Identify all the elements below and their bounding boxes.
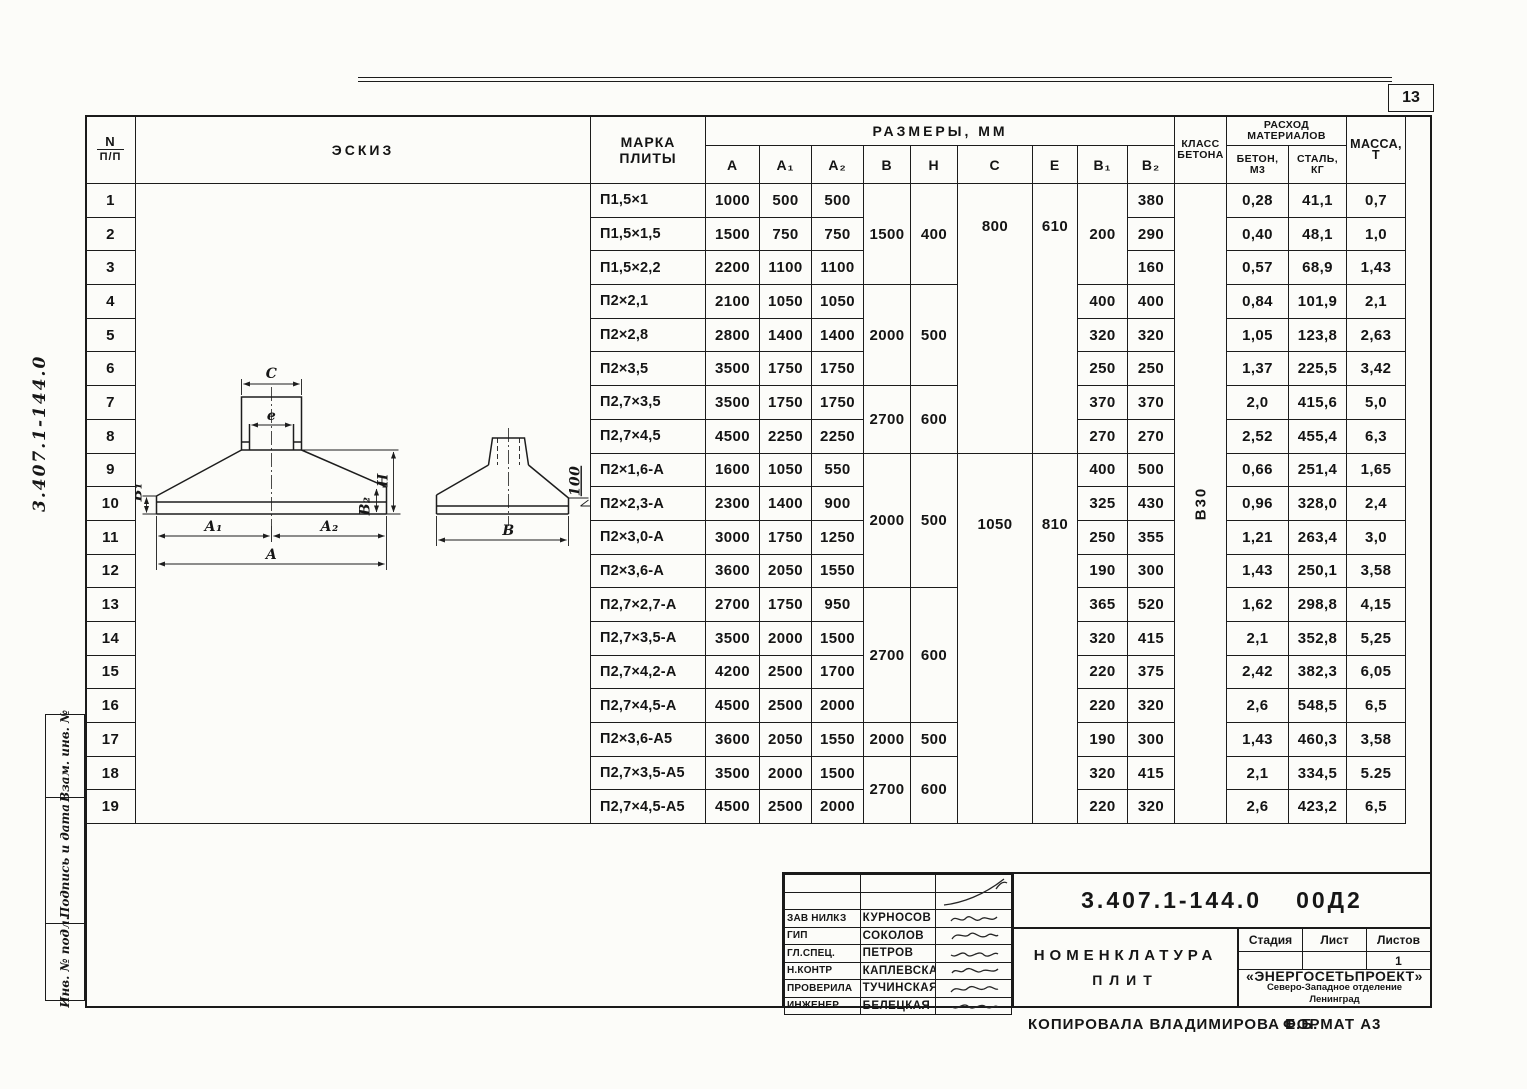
row-num: 19 bbox=[86, 790, 136, 824]
dim-a2: 1100 bbox=[812, 251, 864, 285]
plate-mark: П2,7×4,2-А bbox=[591, 655, 706, 689]
steel-weight: 328,0 bbox=[1289, 487, 1347, 521]
dim-a1: 2500 bbox=[760, 689, 812, 723]
dim-a1: 1750 bbox=[760, 520, 812, 554]
dim-h: 500 bbox=[911, 723, 958, 757]
dim-a: 2200 bbox=[706, 251, 760, 285]
dim-a: 1600 bbox=[706, 453, 760, 487]
plate-mark: П2,7×4,5-А bbox=[591, 689, 706, 723]
mass: 3,58 bbox=[1347, 554, 1406, 588]
plate-mark: П2×3,0-А bbox=[591, 520, 706, 554]
dim-b2: 520 bbox=[1128, 588, 1175, 622]
concrete-volume: 2,6 bbox=[1227, 689, 1289, 723]
dim-a2: 1250 bbox=[812, 520, 864, 554]
document-number: 3.407.1-144.0 bbox=[1081, 887, 1262, 914]
col-b1: В₁ bbox=[1078, 146, 1128, 184]
dim-b2: 355 bbox=[1128, 520, 1175, 554]
dim-b1: 325 bbox=[1078, 487, 1128, 521]
row-num: 16 bbox=[86, 689, 136, 723]
dim-a2: 1550 bbox=[812, 554, 864, 588]
dim-a: 4500 bbox=[706, 689, 760, 723]
stamp-box-inv: Инв. № подл. bbox=[45, 923, 85, 1001]
row-num: 10 bbox=[86, 487, 136, 521]
dim-a: 1000 bbox=[706, 184, 760, 218]
dim-b1: 320 bbox=[1078, 318, 1128, 352]
person-name: Петров bbox=[860, 945, 936, 963]
dim-b1: 365 bbox=[1078, 588, 1128, 622]
dim-a2: 500 bbox=[812, 184, 864, 218]
role-label: Проверила bbox=[785, 980, 861, 998]
col-beton: Бетон, м3 bbox=[1227, 146, 1289, 184]
dim-b2: 320 bbox=[1128, 689, 1175, 723]
steel-weight: 251,4 bbox=[1289, 453, 1347, 487]
dim-a1: 1400 bbox=[760, 318, 812, 352]
stamp-label: Подпись и дата bbox=[58, 804, 72, 918]
dim-b2: 250 bbox=[1128, 352, 1175, 386]
steel-weight: 250,1 bbox=[1289, 554, 1347, 588]
dim-a1: 1100 bbox=[760, 251, 812, 285]
col-klass: Класс бетона bbox=[1175, 116, 1227, 184]
row-num: 15 bbox=[86, 655, 136, 689]
org-branch: Северо-Западное отделение bbox=[1267, 982, 1402, 994]
copy-note: Копировала Владимирова Е.Б. bbox=[1028, 1016, 1318, 1033]
title-block: Зав НИЛКЗ Курносов ГИП Соколов Гл.спец. … bbox=[782, 872, 1432, 1008]
concrete-class: В30 bbox=[1192, 487, 1209, 521]
col-marka: Марка плиты bbox=[591, 116, 706, 184]
dim-a: 3500 bbox=[706, 386, 760, 420]
plate-mark: П1,5×1 bbox=[591, 184, 706, 218]
stamp-label: Инв. № подл. bbox=[58, 916, 72, 1008]
dim-a2: 1700 bbox=[812, 655, 864, 689]
dim-b2: 415 bbox=[1128, 756, 1175, 790]
col-e: е bbox=[1033, 146, 1078, 184]
document-number-box: 3.407.1-144.0 00Д2 bbox=[1014, 874, 1430, 929]
mass: 5,25 bbox=[1347, 621, 1406, 655]
steel-weight: 68,9 bbox=[1289, 251, 1347, 285]
row-num: 3 bbox=[86, 251, 136, 285]
dim-a2: 900 bbox=[812, 487, 864, 521]
document-title: Номенклатура плит bbox=[1014, 929, 1239, 1006]
title-line-1: Номенклатура bbox=[1034, 947, 1218, 964]
plates-table: N п/п Эскиз Марка плиты Размеры, мм Клас… bbox=[85, 115, 1406, 824]
signature-block: Зав НИЛКЗ Курносов ГИП Соколов Гл.спец. … bbox=[784, 874, 1014, 1006]
left-figure: С е В₁ В₂ Н bbox=[136, 366, 401, 570]
scanned-sheet: 13 3.407.1-144.0 Взам. инв. № Подпись и … bbox=[0, 0, 1527, 1089]
concrete-volume: 2,52 bbox=[1227, 419, 1289, 453]
concrete-volume: 1,05 bbox=[1227, 318, 1289, 352]
plate-mark: П2,7×3,5-А5 bbox=[591, 756, 706, 790]
dim-a2: 1750 bbox=[812, 352, 864, 386]
dim-a: 4500 bbox=[706, 790, 760, 824]
col-h: Н bbox=[911, 146, 958, 184]
dim-b2: 500 bbox=[1128, 453, 1175, 487]
signature-mark bbox=[948, 947, 1000, 960]
steel-weight: 298,8 bbox=[1289, 588, 1347, 622]
plate-mark: П2×2,8 bbox=[591, 318, 706, 352]
dim-b1: 250 bbox=[1078, 520, 1128, 554]
dim-a1: 1750 bbox=[760, 352, 812, 386]
mass: 3,0 bbox=[1347, 520, 1406, 554]
concrete-volume: 2,1 bbox=[1227, 621, 1289, 655]
dim-h: 600 bbox=[911, 756, 958, 823]
concrete-volume: 0,57 bbox=[1227, 251, 1289, 285]
mass: 3,58 bbox=[1347, 723, 1406, 757]
concrete-volume: 1,21 bbox=[1227, 520, 1289, 554]
dim-a1: 1750 bbox=[760, 588, 812, 622]
dim-a1: 2050 bbox=[760, 723, 812, 757]
dim-b2: 300 bbox=[1128, 554, 1175, 588]
num-label: N bbox=[86, 135, 135, 149]
mass: 2,4 bbox=[1347, 487, 1406, 521]
mass: 6,5 bbox=[1347, 790, 1406, 824]
col-b: В bbox=[864, 146, 911, 184]
mass: 1,0 bbox=[1347, 217, 1406, 251]
mass: 2,1 bbox=[1347, 285, 1406, 319]
right-figure: В 100 bbox=[437, 428, 591, 546]
stal-header-1: Сталь, bbox=[1289, 154, 1346, 165]
stage-value bbox=[1239, 952, 1303, 969]
plate-cross-sections: С е В₁ В₂ Н bbox=[136, 184, 590, 804]
side-document-code: 3.407.1-144.0 bbox=[30, 355, 50, 512]
dim-a2: 1500 bbox=[812, 756, 864, 790]
concrete-volume: 0,84 bbox=[1227, 285, 1289, 319]
dim-a: 3600 bbox=[706, 723, 760, 757]
dim-b2: 300 bbox=[1128, 723, 1175, 757]
dim-a: 3000 bbox=[706, 520, 760, 554]
dim-b: 2700 bbox=[864, 588, 911, 723]
mass: 3,42 bbox=[1347, 352, 1406, 386]
beton-header-1: Бетон, bbox=[1227, 154, 1288, 165]
dim-label-e: е bbox=[267, 408, 276, 424]
dim-b: 2700 bbox=[864, 756, 911, 823]
steel-weight: 263,4 bbox=[1289, 520, 1347, 554]
dim-b1: 220 bbox=[1078, 655, 1128, 689]
sheet-value bbox=[1303, 952, 1367, 969]
concrete-volume: 0,28 bbox=[1227, 184, 1289, 218]
dim-e: 810 bbox=[1033, 453, 1078, 824]
dim-b: 2000 bbox=[864, 285, 911, 386]
concrete-volume: 0,96 bbox=[1227, 487, 1289, 521]
dim-label-b2: В₂ bbox=[358, 497, 374, 517]
plate-mark: П2×3,6-А bbox=[591, 554, 706, 588]
dim-a1: 2000 bbox=[760, 756, 812, 790]
row-num: 12 bbox=[86, 554, 136, 588]
org-city: Ленинград bbox=[1309, 994, 1359, 1006]
dim-e: 610 bbox=[1033, 184, 1078, 454]
plate-mark: П2,7×4,5-А5 bbox=[591, 790, 706, 824]
dim-label-a1: А₁ bbox=[203, 519, 222, 535]
plate-mark: П2×2,3-А bbox=[591, 487, 706, 521]
row-num: 9 bbox=[86, 453, 136, 487]
col-a: А bbox=[706, 146, 760, 184]
mass: 5.25 bbox=[1347, 756, 1406, 790]
dim-a1: 2000 bbox=[760, 621, 812, 655]
stage-block: Стадия Лист Листов 1 «ЭНЕРГОСЕТЬПРОЕКТ» … bbox=[1239, 929, 1430, 1006]
row-num: 18 bbox=[86, 756, 136, 790]
sheets-label: Листов bbox=[1367, 929, 1430, 951]
dim-b2: 320 bbox=[1128, 790, 1175, 824]
mass: 6,5 bbox=[1347, 689, 1406, 723]
dim-b: 2000 bbox=[864, 453, 911, 588]
dim-a1: 2500 bbox=[760, 790, 812, 824]
person-name: Белецкая bbox=[860, 997, 936, 1015]
dim-label-b: В bbox=[501, 523, 514, 539]
dim-a2: 1750 bbox=[812, 386, 864, 420]
stal-header-2: кг bbox=[1289, 165, 1346, 176]
dim-b1: 200 bbox=[1078, 184, 1128, 285]
organization: «ЭНЕРГОСЕТЬПРОЕКТ» Северо-Западное отдел… bbox=[1239, 970, 1430, 1006]
col-razmery: Размеры, мм bbox=[706, 116, 1175, 146]
sketch-figure: С е В₁ В₂ Н bbox=[136, 184, 590, 804]
dim-a2: 1400 bbox=[812, 318, 864, 352]
steel-weight: 423,2 bbox=[1289, 790, 1347, 824]
dim-b: 2700 bbox=[864, 386, 911, 453]
steel-weight: 123,8 bbox=[1289, 318, 1347, 352]
dim-b1: 270 bbox=[1078, 419, 1128, 453]
col-b2: В₂ bbox=[1128, 146, 1175, 184]
concrete-class-cell: В30 bbox=[1175, 184, 1227, 824]
dim-label-a2: А₂ bbox=[319, 519, 338, 535]
sheets-value: 1 bbox=[1367, 952, 1430, 969]
col-stal: Сталь, кг bbox=[1289, 146, 1347, 184]
dim-h: 600 bbox=[911, 386, 958, 453]
plate-mark: П2,7×3,5-А bbox=[591, 621, 706, 655]
mass: 5,0 bbox=[1347, 386, 1406, 420]
dim-a1: 1050 bbox=[760, 285, 812, 319]
steel-weight: 101,9 bbox=[1289, 285, 1347, 319]
signature-mark bbox=[948, 912, 1000, 925]
dim-a: 2700 bbox=[706, 588, 760, 622]
steel-weight: 48,1 bbox=[1289, 217, 1347, 251]
concrete-volume: 2,0 bbox=[1227, 386, 1289, 420]
row-num: 8 bbox=[86, 419, 136, 453]
col-rashod: Расход материалов bbox=[1227, 116, 1347, 146]
concrete-volume: 0,40 bbox=[1227, 217, 1289, 251]
dim-a1: 750 bbox=[760, 217, 812, 251]
dim-h: 500 bbox=[911, 285, 958, 386]
dim-b1: 370 bbox=[1078, 386, 1128, 420]
dim-b1: 320 bbox=[1078, 756, 1128, 790]
dim-b1: 400 bbox=[1078, 285, 1128, 319]
sketch-cell: С е В₁ В₂ Н bbox=[136, 184, 591, 824]
title-line-2: плит bbox=[1092, 972, 1159, 988]
row-num: 11 bbox=[86, 520, 136, 554]
plate-mark: П1,5×2,2 bbox=[591, 251, 706, 285]
steel-weight: 548,5 bbox=[1289, 689, 1347, 723]
steel-weight: 415,6 bbox=[1289, 386, 1347, 420]
dim-b2: 415 bbox=[1128, 621, 1175, 655]
mass: 1,43 bbox=[1347, 251, 1406, 285]
col-massa: Масса, т bbox=[1347, 116, 1406, 184]
role-label: Инженер bbox=[785, 997, 861, 1015]
col-a2: А₂ bbox=[812, 146, 864, 184]
concrete-volume: 2,6 bbox=[1227, 790, 1289, 824]
plate-mark: П2×3,5 bbox=[591, 352, 706, 386]
person-name: Соколов bbox=[860, 927, 936, 945]
dim-b1: 320 bbox=[1078, 621, 1128, 655]
dim-a: 3600 bbox=[706, 554, 760, 588]
table-header: N п/п Эскиз Марка плиты Размеры, мм Клас… bbox=[86, 116, 1406, 184]
dim-a: 2300 bbox=[706, 487, 760, 521]
mass: 6,05 bbox=[1347, 655, 1406, 689]
person-name: Курносов bbox=[860, 910, 936, 928]
org-name: «ЭНЕРГОСЕТЬПРОЕКТ» bbox=[1246, 970, 1423, 982]
row-num: 17 bbox=[86, 723, 136, 757]
mass: 2,63 bbox=[1347, 318, 1406, 352]
dim-b1: 400 bbox=[1078, 453, 1128, 487]
steel-weight: 460,3 bbox=[1289, 723, 1347, 757]
beton-header-2: м3 bbox=[1227, 165, 1288, 176]
handwritten-flourish bbox=[940, 875, 1010, 909]
signature-mark bbox=[948, 982, 1000, 995]
row-num: 5 bbox=[86, 318, 136, 352]
row-num: 6 bbox=[86, 352, 136, 386]
plate-mark: П2×1,6-А bbox=[591, 453, 706, 487]
dim-a2: 2250 bbox=[812, 419, 864, 453]
stamp-sidebar: Взам. инв. № Подпись и дата Инв. № подл. bbox=[45, 716, 85, 1001]
concrete-volume: 1,37 bbox=[1227, 352, 1289, 386]
dim-b2: 320 bbox=[1128, 318, 1175, 352]
page-number: 13 bbox=[1402, 89, 1420, 107]
dim-b1: 190 bbox=[1078, 554, 1128, 588]
dim-a2: 1050 bbox=[812, 285, 864, 319]
col-a1: А₁ bbox=[760, 146, 812, 184]
dim-h: 400 bbox=[911, 184, 958, 285]
row-num: 7 bbox=[86, 386, 136, 420]
dim-a2: 750 bbox=[812, 217, 864, 251]
steel-weight: 382,3 bbox=[1289, 655, 1347, 689]
dim-c: 800 bbox=[958, 184, 1033, 454]
massa-header-2: т bbox=[1347, 150, 1405, 161]
dim-a2: 1550 bbox=[812, 723, 864, 757]
document-suffix: 00Д2 bbox=[1296, 887, 1363, 914]
person-name: Тучинская bbox=[860, 980, 936, 998]
dim-b2: 270 bbox=[1128, 419, 1175, 453]
sheet-label: Лист bbox=[1303, 929, 1367, 951]
concrete-volume: 1,43 bbox=[1227, 554, 1289, 588]
dim-b1: 220 bbox=[1078, 790, 1128, 824]
dim-a2: 950 bbox=[812, 588, 864, 622]
dim-a2: 1500 bbox=[812, 621, 864, 655]
concrete-volume: 1,43 bbox=[1227, 723, 1289, 757]
top-rule bbox=[358, 77, 1392, 82]
steel-weight: 41,1 bbox=[1289, 184, 1347, 218]
dim-c: 1050 bbox=[958, 453, 1033, 824]
person-name: Каплевская bbox=[860, 962, 936, 980]
dim-label-h: Н bbox=[376, 473, 392, 488]
dim-b2: 380 bbox=[1128, 184, 1175, 218]
dim-a: 3500 bbox=[706, 352, 760, 386]
plate-mark: П2,7×4,5 bbox=[591, 419, 706, 453]
concrete-volume: 0,66 bbox=[1227, 453, 1289, 487]
sketch-header: Эскиз bbox=[332, 142, 394, 158]
razmery-header: Размеры, мм bbox=[872, 123, 1007, 139]
marka-header-1: Марка bbox=[591, 134, 705, 150]
mass: 1,65 bbox=[1347, 453, 1406, 487]
dim-a1: 2500 bbox=[760, 655, 812, 689]
role-label: Зав НИЛКЗ bbox=[785, 910, 861, 928]
role-label: Н.контр bbox=[785, 962, 861, 980]
mass: 0,7 bbox=[1347, 184, 1406, 218]
role-label: ГИП bbox=[785, 927, 861, 945]
dim-a1: 1400 bbox=[760, 487, 812, 521]
dim-a2: 550 bbox=[812, 453, 864, 487]
rashod-header-2: материалов bbox=[1227, 131, 1346, 142]
dim-a1: 2250 bbox=[760, 419, 812, 453]
steel-weight: 455,4 bbox=[1289, 419, 1347, 453]
dim-a1: 500 bbox=[760, 184, 812, 218]
dim-a1: 2050 bbox=[760, 554, 812, 588]
row-num: 2 bbox=[86, 217, 136, 251]
mass: 6,3 bbox=[1347, 419, 1406, 453]
dim-h: 600 bbox=[911, 588, 958, 723]
dim-b1: 250 bbox=[1078, 352, 1128, 386]
dim-b2: 370 bbox=[1128, 386, 1175, 420]
rashod-header-1: Расход bbox=[1227, 120, 1346, 131]
row-num: 1 bbox=[86, 184, 136, 218]
klass-header-2: бетона bbox=[1175, 150, 1226, 161]
row-num: 4 bbox=[86, 285, 136, 319]
concrete-volume: 2,42 bbox=[1227, 655, 1289, 689]
stamp-box-vzam: Взам. инв. № bbox=[45, 714, 85, 798]
dim-b2: 400 bbox=[1128, 285, 1175, 319]
dim-b2: 290 bbox=[1128, 217, 1175, 251]
col-num: N п/п bbox=[86, 116, 136, 184]
dim-b: 2000 bbox=[864, 723, 911, 757]
dim-a: 4200 bbox=[706, 655, 760, 689]
signature-mark bbox=[948, 929, 1000, 942]
dim-b2: 430 bbox=[1128, 487, 1175, 521]
page-number-box: 13 bbox=[1388, 84, 1434, 112]
steel-weight: 225,5 bbox=[1289, 352, 1347, 386]
stage-label: Стадия bbox=[1239, 929, 1303, 951]
plate-mark: П2×3,6-А5 bbox=[591, 723, 706, 757]
col-sketch: Эскиз bbox=[136, 116, 591, 184]
marka-header-2: плиты bbox=[591, 150, 705, 166]
concrete-volume: 2,1 bbox=[1227, 756, 1289, 790]
dim-a: 2100 bbox=[706, 285, 760, 319]
plate-mark: П2,7×2,7-А bbox=[591, 588, 706, 622]
dim-label-b1: В₁ bbox=[136, 483, 146, 503]
dim-a2: 2000 bbox=[812, 689, 864, 723]
dim-a2: 2000 bbox=[812, 790, 864, 824]
signature-mark bbox=[948, 999, 1000, 1012]
dim-b2: 375 bbox=[1128, 655, 1175, 689]
dim-b1: 190 bbox=[1078, 723, 1128, 757]
row-num: 14 bbox=[86, 621, 136, 655]
dim-b2: 160 bbox=[1128, 251, 1175, 285]
dim-a: 3500 bbox=[706, 621, 760, 655]
dim-a: 3500 bbox=[706, 756, 760, 790]
dim-h: 500 bbox=[911, 453, 958, 588]
format-note: Формат А3 bbox=[1283, 1016, 1381, 1033]
concrete-volume: 1,62 bbox=[1227, 588, 1289, 622]
dim-b: 1500 bbox=[864, 184, 911, 285]
plates-table-body: 1 С bbox=[86, 184, 1406, 824]
dim-b1: 220 bbox=[1078, 689, 1128, 723]
role-label: Гл.спец. bbox=[785, 945, 861, 963]
table-row: 1 С bbox=[86, 184, 1406, 218]
klass-header-1: Класс bbox=[1175, 139, 1226, 150]
plate-mark: П2×2,1 bbox=[591, 285, 706, 319]
dim-a: 4500 bbox=[706, 419, 760, 453]
dim-label-c: С bbox=[266, 366, 278, 382]
dim-a: 2800 bbox=[706, 318, 760, 352]
slope-label: 100 bbox=[568, 466, 584, 496]
plate-mark: П2,7×3,5 bbox=[591, 386, 706, 420]
col-c: С bbox=[958, 146, 1033, 184]
row-num: 13 bbox=[86, 588, 136, 622]
